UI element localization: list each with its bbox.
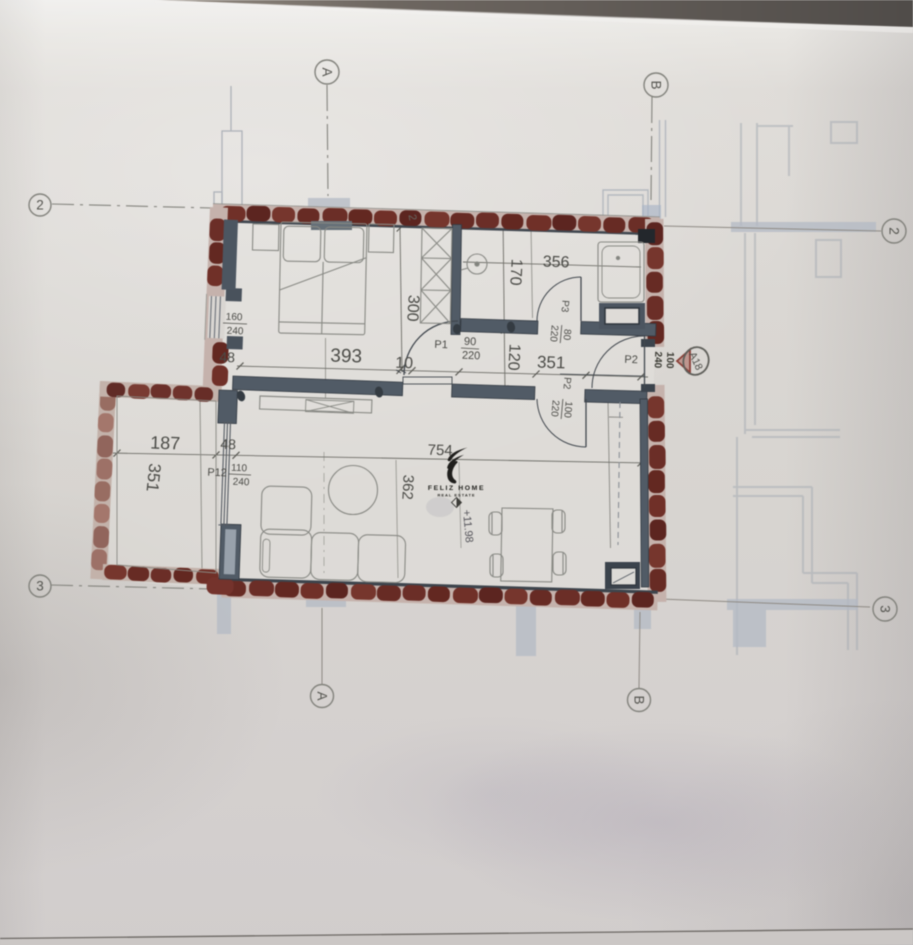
svg-text:B: B [649,80,664,89]
svg-text:160: 160 [226,312,243,324]
svg-text:FELIZ HOME: FELIZ HOME [428,485,485,492]
svg-text:3: 3 [36,579,44,594]
svg-text:10: 10 [395,355,413,373]
svg-text:187: 187 [150,432,181,453]
svg-text:351: 351 [537,353,566,373]
svg-text:48: 48 [219,349,235,366]
svg-text:P3: P3 [558,300,570,314]
svg-text:220: 220 [547,325,559,343]
svg-text:362: 362 [398,474,416,500]
svg-text:240: 240 [233,477,250,489]
svg-text:REAL ESTATE: REAL ESTATE [437,493,475,498]
svg-text:356: 356 [543,254,570,272]
svg-text:393: 393 [330,345,362,367]
svg-text:351: 351 [143,462,165,492]
svg-text:48: 48 [220,436,236,453]
svg-text:P2: P2 [624,354,638,366]
svg-text:100: 100 [664,352,676,369]
svg-text:P2: P2 [560,377,572,391]
svg-text:120: 120 [504,343,522,371]
svg-text:P1: P1 [434,339,448,351]
svg-text:754: 754 [427,442,453,460]
svg-text:90: 90 [464,336,477,348]
svg-text:B: B [632,695,647,704]
svg-text:100: 100 [561,401,573,419]
svg-text:3: 3 [878,605,893,613]
svg-text:110: 110 [231,463,248,475]
svg-text:300: 300 [403,294,421,322]
svg-text:220: 220 [462,350,481,363]
svg-text:2: 2 [36,198,44,213]
svg-text:220: 220 [548,400,560,418]
svg-text:2: 2 [887,227,902,235]
svg-text:240: 240 [652,351,664,368]
svg-text:170: 170 [506,258,524,286]
svg-text:A: A [320,67,335,76]
svg-text:240: 240 [227,326,244,338]
svg-text:A: A [315,691,330,700]
svg-text:P12: P12 [207,467,227,480]
svg-text:80: 80 [560,329,572,341]
